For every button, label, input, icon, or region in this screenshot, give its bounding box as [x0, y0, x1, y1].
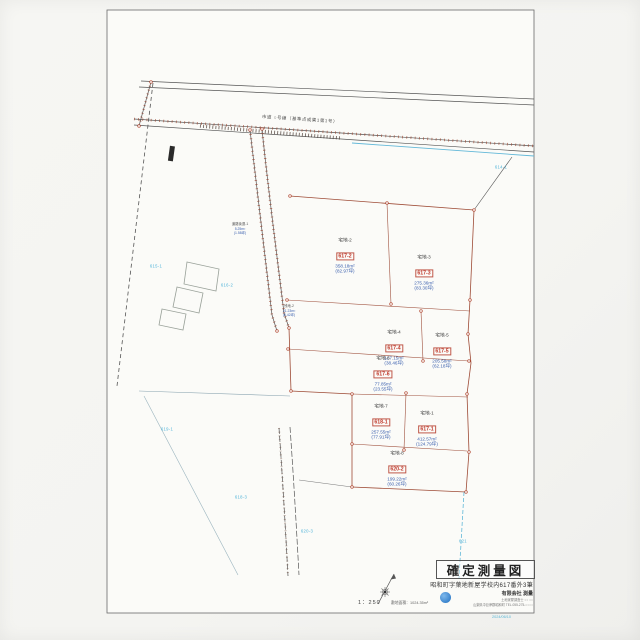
- lot-number-badge: 617-2: [336, 252, 354, 261]
- lot-label-617-2: 宅地-2 617-2 358.18m² (82.97坪): [335, 237, 354, 274]
- lot-area-tsubo: (82.97坪): [335, 269, 354, 275]
- lot-number-badge: 617-4: [385, 344, 403, 353]
- lot-area-tsubo: (23.55坪): [373, 387, 392, 393]
- lot-name: 宅地-5: [432, 332, 451, 338]
- neighbor-parcel-label: 621: [459, 539, 467, 544]
- lot-label-617-3: 宅地-3 617-3 275.36m² (83.30坪): [414, 254, 433, 291]
- lot-number-badge: 617-3: [415, 269, 433, 278]
- lot-name: 宅地-6: [373, 355, 392, 361]
- lot-label-618-1: 宅地-7 618-1 257.55m² (77.91坪): [371, 403, 390, 440]
- lot-area-tsubo: (62.18坪): [432, 364, 451, 370]
- total-area-note: 敷地面積：1024.35m²: [391, 601, 428, 606]
- neighbor-parcel-label: 616-2: [221, 283, 233, 288]
- surveyor-stamp: [440, 592, 451, 603]
- title-box: 確定測量図: [436, 560, 535, 579]
- scale-label: 1：250: [358, 598, 381, 606]
- lot-area-tsubo: (77.91坪): [371, 435, 390, 441]
- road-name-label: 市道 ○号線（基準点成果1第1号）: [262, 114, 338, 125]
- lot-area-tsubo: (124.79坪): [416, 442, 438, 448]
- drawing-title: 確定測量図: [447, 560, 525, 579]
- annotation-tsubo: (6.42坪): [283, 313, 295, 318]
- neighbor-parcel-label: 620-3: [301, 529, 313, 534]
- annotation-name: 残地-2: [283, 304, 295, 309]
- lot-number-badge: 617-1: [418, 425, 436, 434]
- neighbor-parcel-label: 619-1: [161, 427, 173, 432]
- lot-area-tsubo: (83.30坪): [414, 286, 433, 292]
- lot-name: 宅地-3: [414, 254, 433, 260]
- lot-number-badge: 617-6: [374, 370, 392, 379]
- site-address: 昭和町字葉地新屋学校内617番外3筆: [398, 580, 533, 589]
- lot-label-620-2: 宅地-8 620-2 199.22m² (60.26坪): [387, 450, 406, 487]
- lot-number-badge: 620-2: [388, 465, 406, 474]
- neighbor-parcel-label: 618-3: [235, 495, 247, 500]
- lot-name: 宅地-7: [371, 403, 390, 409]
- lot-area-tsubo: (60.26坪): [387, 482, 406, 488]
- lot-label-617-1: 宅地-1 617-1 412.57m² (124.79坪): [416, 410, 438, 447]
- annotation-tsubo: (1.58坪): [232, 231, 249, 236]
- annotation-setback: 道路後退-1 5.25m² (1.58坪): [232, 222, 249, 236]
- lot-label-617-5: 宅地-5 617-5 205.58m² (62.18坪): [432, 332, 451, 369]
- label-overlay: 市道 ○号線（基準点成果1第1号） 宅地-2 617-2 358.18m² (8…: [0, 0, 640, 640]
- neighbor-parcel-label: 614-1: [495, 165, 507, 170]
- annotation-name: 道路後退-1: [232, 222, 249, 227]
- lot-number-badge: 617-5: [433, 347, 451, 356]
- lot-name: 宅地-1: [416, 410, 438, 416]
- lot-number-badge: 618-1: [372, 418, 390, 427]
- annotation-remnant: 残地-2 21.23m² (6.42坪): [283, 304, 295, 318]
- lot-name: 宅地-4: [384, 329, 403, 335]
- lot-name: 宅地-2: [335, 237, 354, 243]
- surveyor-firm-name: 有限会社 測量: [452, 590, 533, 597]
- survey-sheet: 市道 ○号線（基準点成果1第1号） 宅地-2 617-2 358.18m² (8…: [0, 0, 640, 640]
- lot-name: 宅地-8: [387, 450, 406, 456]
- lot-label-617-6: 宅地-6 617-6 77.85m² (23.55坪): [373, 355, 392, 392]
- neighbor-parcel-label: 615-1: [150, 264, 162, 269]
- surveyor-line2: 山梨県中巨摩郡昭和町 TEL.055-275-○○○○: [452, 602, 533, 607]
- drawing-date: 2024/06/10: [492, 615, 511, 619]
